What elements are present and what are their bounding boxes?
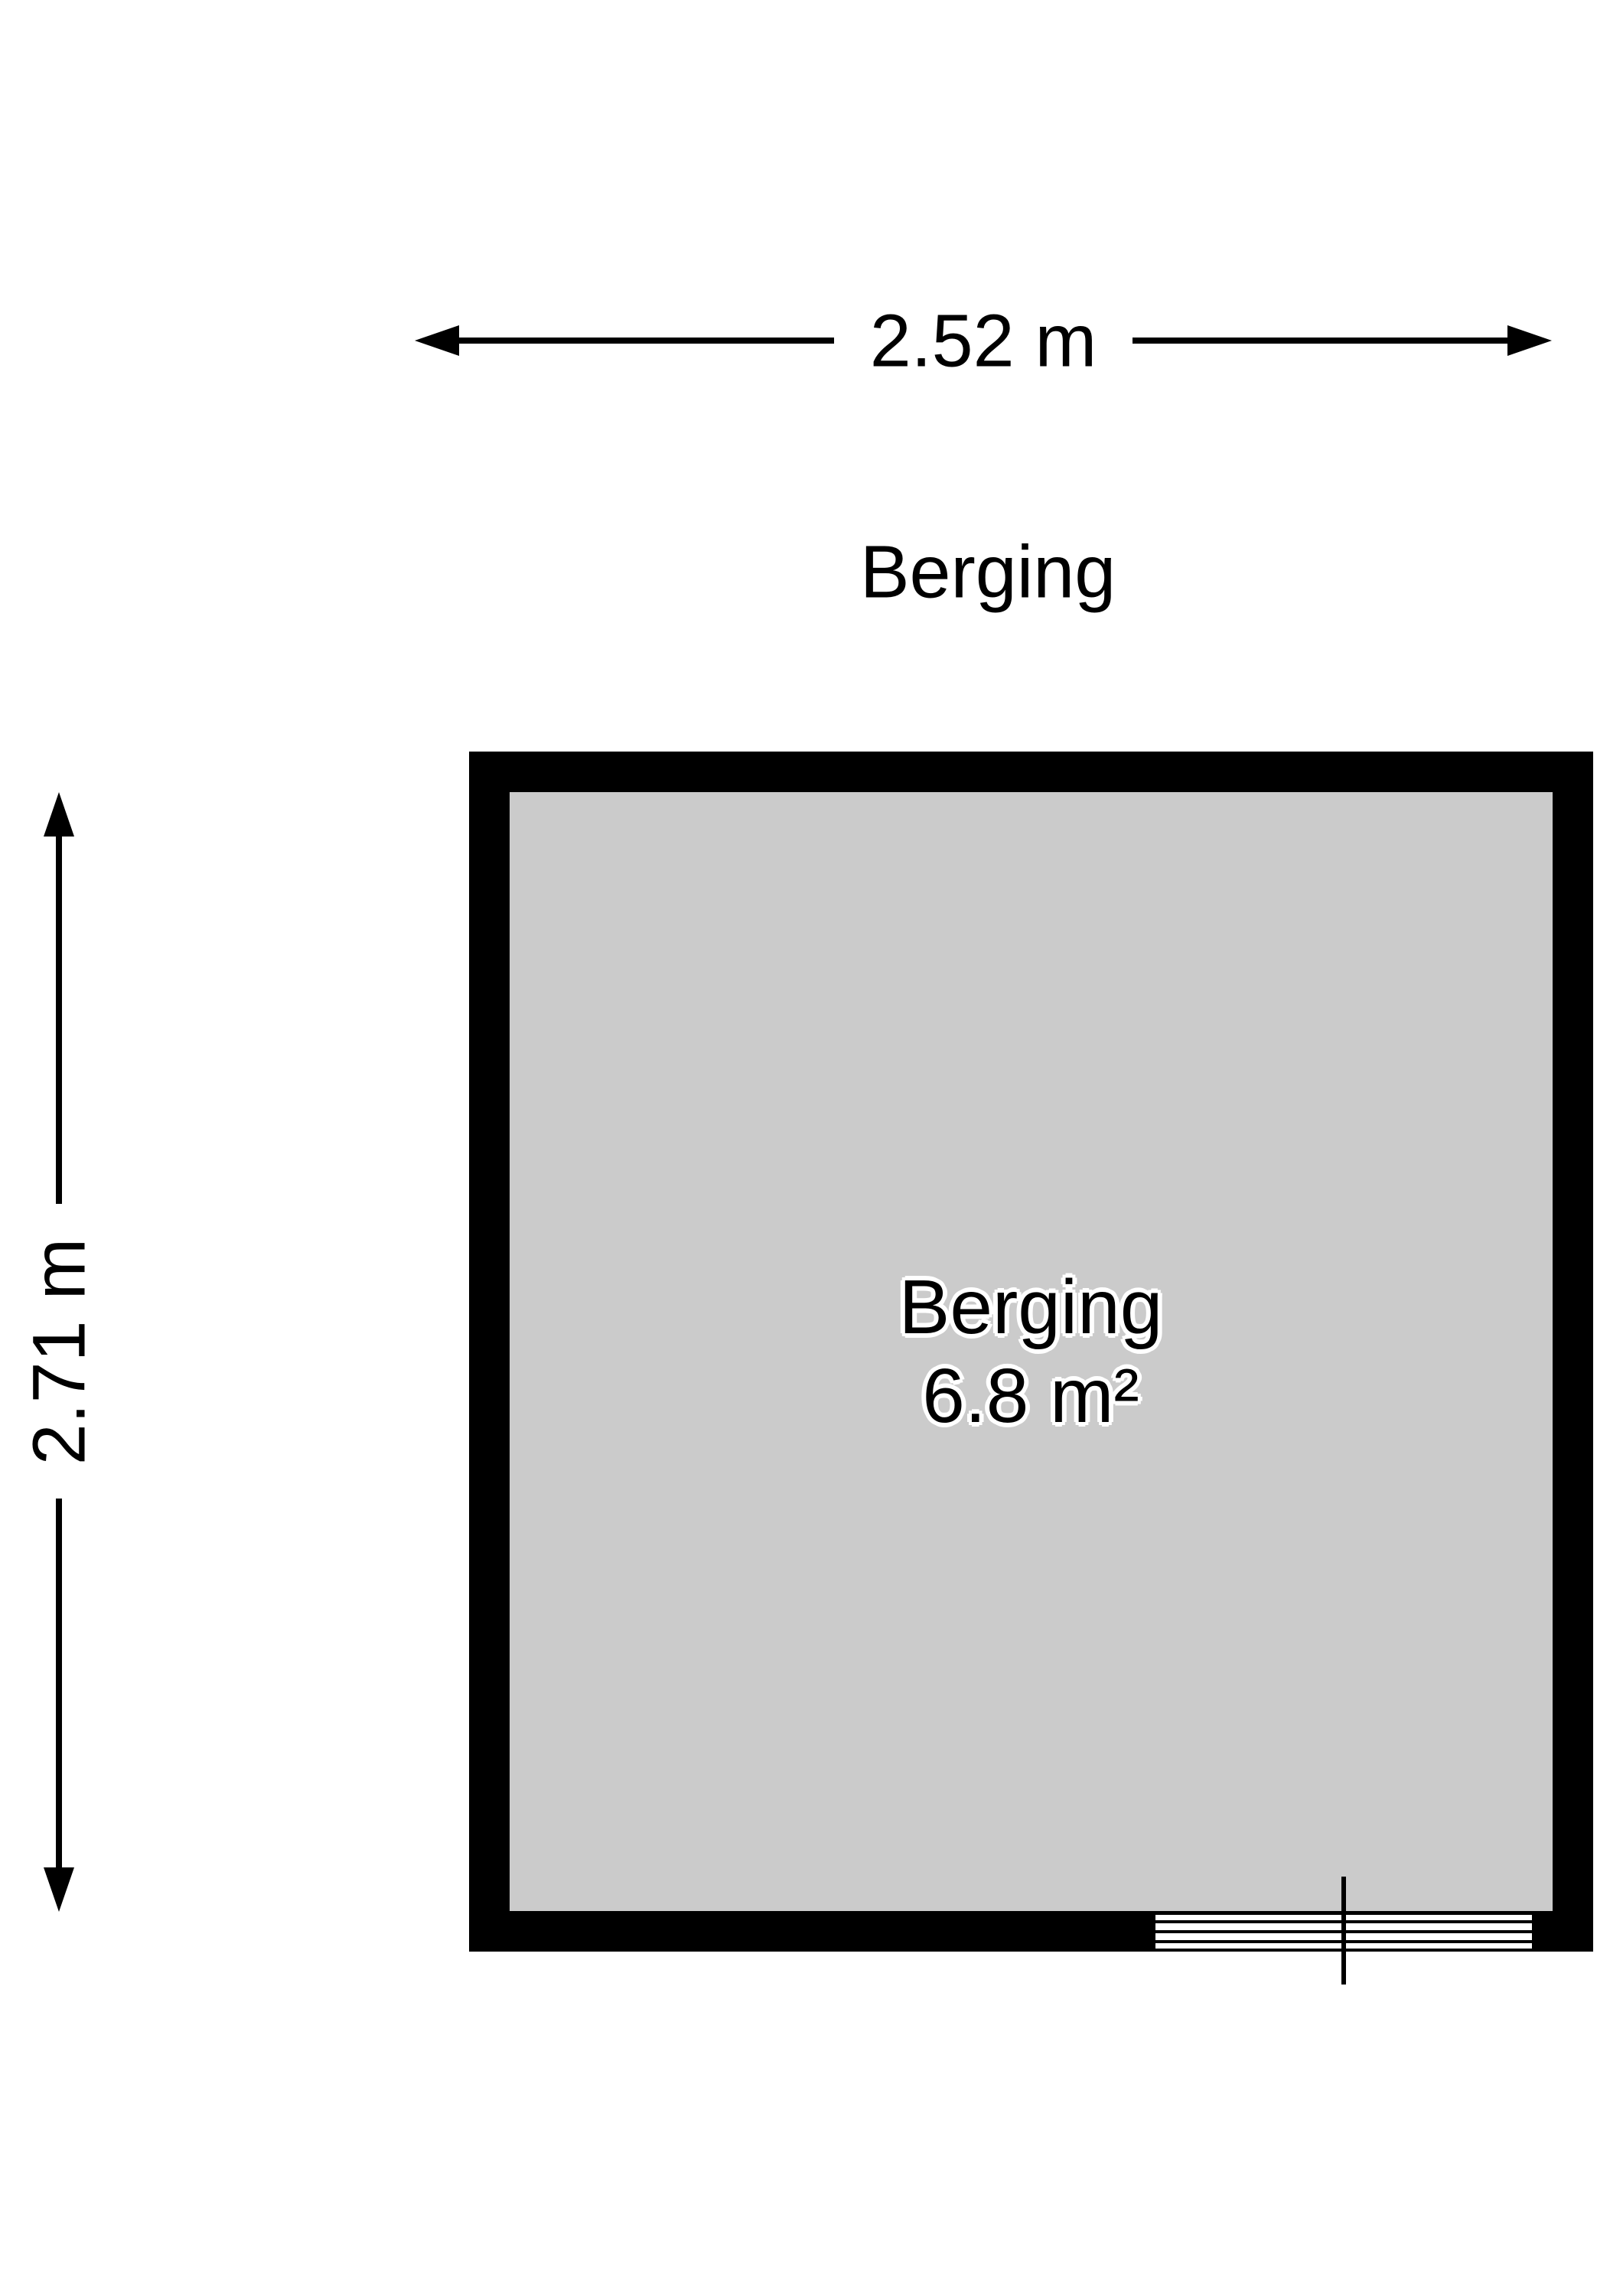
width-dimension-arrow-left-icon [415, 325, 459, 356]
room-area: 6.8 m² [899, 1352, 1163, 1440]
height-dimension-arrow-up-icon [44, 792, 74, 837]
height-dimension-line-top [56, 837, 62, 1204]
window-center-marker [1341, 1877, 1346, 1985]
width-dimension-label: 2.52 m [849, 304, 1119, 378]
height-dimension-line-bottom [56, 1499, 62, 1867]
room-name: Berging [899, 1263, 1163, 1352]
room-label: Berging 6.8 m² [899, 1263, 1163, 1440]
floorplan-canvas: 2.52 m Berging 2.71 m Berging 6.8 m² [0, 0, 1623, 2296]
height-dimension-arrow-down-icon [44, 1867, 74, 1912]
height-dimension-label: 2.71 m [22, 1212, 96, 1492]
plan-title: Berging [860, 535, 1116, 609]
width-dimension-line-left [459, 338, 834, 344]
width-dimension-line-right [1133, 338, 1507, 344]
width-dimension-arrow-right-icon [1507, 325, 1552, 356]
